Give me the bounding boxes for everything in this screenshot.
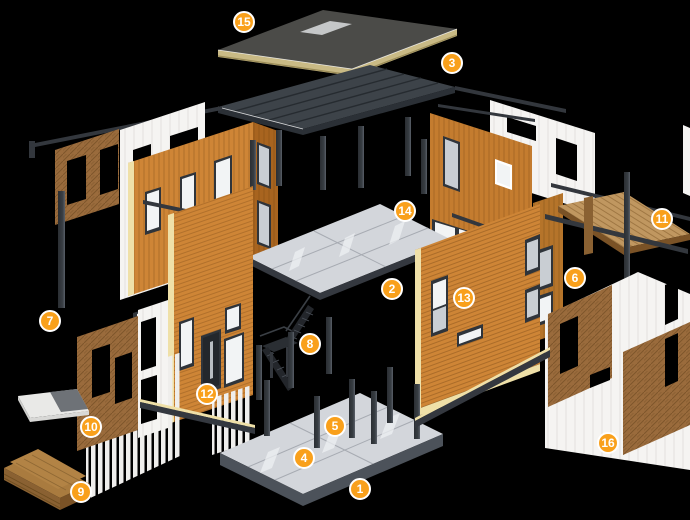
badge-2[interactable]: 2 xyxy=(381,278,403,300)
deck-steel-column xyxy=(624,172,630,286)
badge-6[interactable]: 6 xyxy=(564,267,586,289)
ground-floor-slab xyxy=(220,393,443,506)
badge-5[interactable]: 5 xyxy=(324,415,346,437)
right-edge-wall-sliver xyxy=(683,125,690,196)
badge-16[interactable]: 16 xyxy=(597,432,619,454)
corner-return-wall xyxy=(253,122,278,264)
badge-4[interactable]: 4 xyxy=(293,447,315,469)
badge-3[interactable]: 3 xyxy=(441,52,463,74)
badge-12[interactable]: 12 xyxy=(196,383,218,405)
badge-14[interactable]: 14 xyxy=(394,200,416,222)
exploded-house-diagram: 12345678910111213141516 xyxy=(0,0,690,520)
hanging-steel-columns xyxy=(250,117,427,194)
badge-7[interactable]: 7 xyxy=(39,310,61,332)
badge-15[interactable]: 15 xyxy=(233,11,255,33)
left-steel-column xyxy=(58,191,65,308)
badge-10[interactable]: 10 xyxy=(80,416,102,438)
badge-13[interactable]: 13 xyxy=(453,287,475,309)
lower-white-wall xyxy=(138,300,168,438)
building-illustration xyxy=(0,0,690,520)
badge-1[interactable]: 1 xyxy=(349,478,371,500)
badge-11[interactable]: 11 xyxy=(651,208,673,230)
badge-9[interactable]: 9 xyxy=(70,481,92,503)
badge-8[interactable]: 8 xyxy=(299,333,321,355)
